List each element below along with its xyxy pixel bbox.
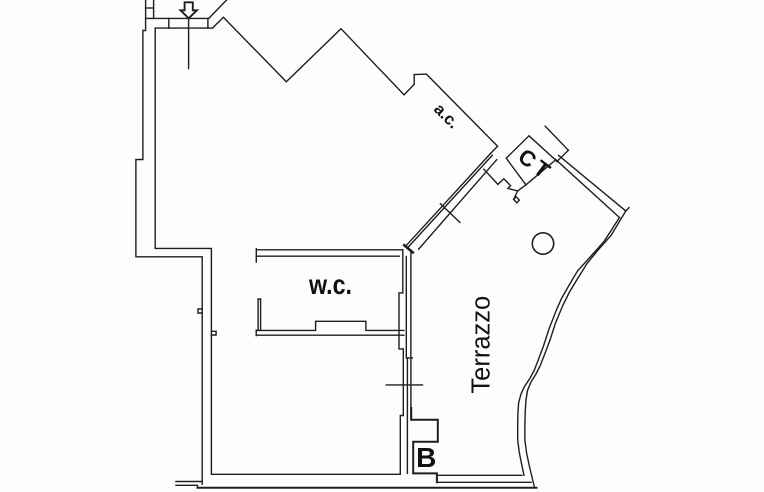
svg-text:B: B bbox=[416, 442, 436, 473]
svg-text:Terrazzo: Terrazzo bbox=[468, 296, 496, 394]
svg-text:w.c.: w.c. bbox=[308, 270, 352, 300]
